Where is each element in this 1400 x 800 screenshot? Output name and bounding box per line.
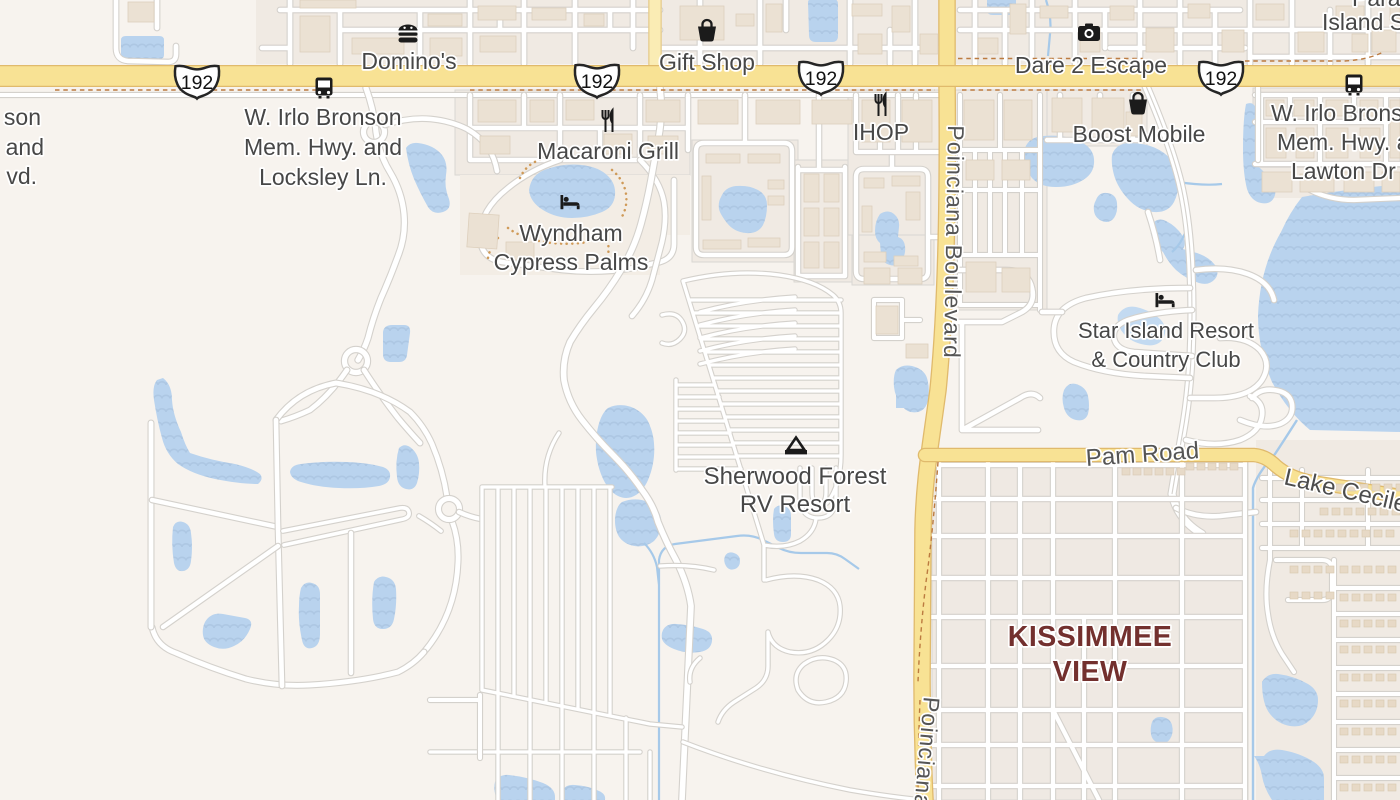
svg-text:RV Resort: RV Resort	[740, 491, 851, 518]
svg-text:Star Island Resort: Star Island Resort	[1078, 318, 1254, 343]
svg-text:Island S: Island S	[1322, 9, 1400, 35]
svg-text:192: 192	[581, 71, 614, 93]
svg-text:IHOP: IHOP	[853, 119, 909, 145]
svg-text:KISSIMMEE: KISSIMMEE	[1008, 621, 1172, 653]
svg-text:192: 192	[1205, 68, 1238, 90]
svg-text:192: 192	[181, 72, 214, 94]
svg-text:Poinciana Boulevard: Poinciana Boulevard	[939, 125, 969, 359]
svg-text:Macaroni Grill: Macaroni Grill	[537, 138, 679, 164]
svg-text:Wyndham: Wyndham	[519, 220, 622, 246]
svg-text:Dare 2 Escape: Dare 2 Escape	[1015, 52, 1167, 78]
svg-text:Gift Shop: Gift Shop	[659, 49, 755, 75]
svg-text:Locksley Ln.: Locksley Ln.	[259, 164, 387, 190]
svg-text:& Country Club: & Country Club	[1091, 347, 1240, 372]
svg-text:Parad: Parad	[1352, 0, 1400, 11]
svg-text:son: son	[4, 104, 41, 130]
svg-text:VIEW: VIEW	[1053, 656, 1128, 688]
svg-text:Domino's: Domino's	[361, 48, 456, 74]
svg-text:Lawton Dr: Lawton Dr	[1291, 158, 1396, 184]
svg-text:W. Irlo Bronson: W. Irlo Bronson	[244, 104, 401, 130]
svg-text:and: and	[6, 134, 44, 160]
svg-text:vd.: vd.	[6, 163, 37, 189]
svg-text:Mem. Hwy. and: Mem. Hwy. and	[244, 134, 402, 160]
svg-text:Cypress Palms: Cypress Palms	[494, 249, 649, 275]
svg-text:W. Irlo Brons: W. Irlo Brons	[1271, 100, 1400, 126]
svg-text:Boost Mobile: Boost Mobile	[1073, 121, 1206, 147]
svg-text:192: 192	[805, 68, 838, 90]
svg-text:Sherwood Forest: Sherwood Forest	[704, 463, 887, 490]
svg-text:Mem. Hwy. an: Mem. Hwy. an	[1277, 129, 1400, 155]
